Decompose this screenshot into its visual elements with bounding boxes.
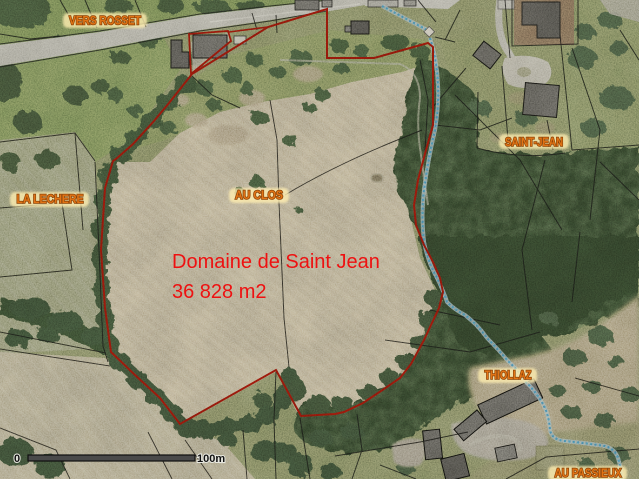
svg-text:VERS ROSSET: VERS ROSSET [69,14,142,28]
svg-text:0: 0 [14,453,20,465]
svg-text:THIOLLAZ: THIOLLAZ [485,368,532,382]
svg-text:36 828 m2: 36 828 m2 [172,281,267,303]
svg-text:LA LECHERE: LA LECHERE [17,192,84,206]
svg-text:SAINT-JEAN: SAINT-JEAN [505,135,563,149]
svg-text:AU PASSIEUX: AU PASSIEUX [555,466,622,479]
svg-text:100m: 100m [197,453,225,465]
svg-text:Domaine de Saint Jean: Domaine de Saint Jean [172,251,380,273]
svg-text:AU CLOS: AU CLOS [235,188,283,202]
